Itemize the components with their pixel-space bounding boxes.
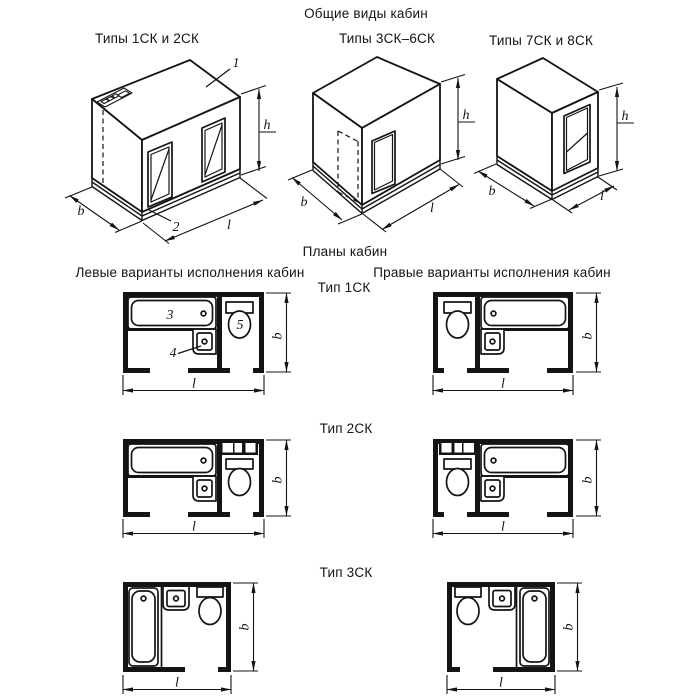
- dim-label-b: b: [301, 195, 308, 210]
- views-section-title: Общие виды кабин: [304, 6, 428, 21]
- width-dimension: [266, 293, 291, 372]
- plan-2sk-left: b l: [110, 433, 306, 545]
- toilet: [444, 459, 471, 496]
- bathtub: [129, 588, 158, 666]
- isometric-view-types-7sk-8sk: h b l: [465, 50, 640, 225]
- right-variants-header: Правые варианты исполнения кабин: [373, 265, 611, 280]
- callout-4: 4: [170, 346, 177, 361]
- washbasin: [193, 476, 216, 501]
- plan-type-label-3sk: Тип 3СК: [320, 565, 373, 580]
- callout-2: 2: [173, 220, 180, 235]
- standard-drawing-page: Общие виды кабин Типы 1СК и 2СК Типы 3СК…: [0, 0, 700, 700]
- dim-label-b: b: [489, 184, 496, 199]
- dim-label-b: b: [271, 477, 286, 484]
- left-variants-header: Левые варианты исполнения кабин: [75, 265, 304, 280]
- plans-section-title: Планы кабин: [303, 244, 388, 259]
- dim-label-l: l: [227, 218, 231, 233]
- vent-block: [219, 439, 258, 455]
- dim-label-h: h: [622, 109, 629, 124]
- washbasin: [481, 476, 504, 501]
- washbasin: [489, 587, 515, 610]
- callout-3: 3: [166, 308, 174, 323]
- dim-label-l: l: [175, 676, 179, 691]
- vent-block: [439, 439, 478, 455]
- plan-3sk-right: b l: [435, 578, 595, 700]
- dim-label-b: b: [581, 333, 596, 340]
- dim-label-b: b: [271, 333, 286, 340]
- dim-label-h: h: [264, 118, 271, 133]
- width-dimension: [576, 293, 601, 372]
- toilet: [444, 302, 471, 338]
- bathtub: [481, 297, 572, 330]
- dim-label-l: l: [192, 377, 196, 392]
- height-dimension: [241, 86, 276, 176]
- height-dimension: [599, 83, 634, 176]
- plan-type-label-1sk: Тип 1СК: [318, 280, 371, 295]
- washbasin: [481, 329, 504, 354]
- dim-label-l: l: [501, 377, 505, 392]
- plan-3sk-left: b l: [110, 578, 268, 700]
- dim-label-l: l: [192, 520, 196, 535]
- view-label-1sk-2sk: Типы 1СК и 2СК: [95, 31, 199, 46]
- isometric-view-types-1sk-2sk: h b l 1 2: [55, 50, 280, 245]
- view-label-7sk-8sk: Типы 7СК и 8СК: [489, 33, 593, 48]
- toilet: [197, 587, 223, 625]
- dim-label-b: b: [78, 204, 85, 219]
- plan-1sk-right: b l: [425, 286, 611, 398]
- view-label-3sk-6sk: Типы 3СК–6СК: [339, 31, 435, 46]
- plan-1sk-left: 3 4 5 b l: [110, 286, 306, 398]
- bathtub: [481, 444, 572, 477]
- dim-label-l: l: [600, 189, 604, 204]
- dim-label-b: b: [562, 624, 577, 631]
- dim-label-l: l: [499, 676, 503, 691]
- dim-label-l: l: [430, 201, 434, 216]
- plan-type-label-2sk: Тип 2СК: [320, 421, 373, 436]
- washbasin: [163, 587, 189, 610]
- callout-5: 5: [237, 318, 244, 333]
- dim-label-b: b: [238, 624, 253, 631]
- toilet: [455, 587, 481, 625]
- bathtub: [520, 588, 549, 666]
- toilet: [226, 459, 253, 496]
- plan-2sk-right: b l: [425, 433, 611, 545]
- isometric-view-types-3sk-6sk: h b l: [285, 50, 477, 235]
- bathtub: [125, 444, 216, 477]
- callout-1: 1: [233, 56, 240, 71]
- dim-label-l: l: [501, 520, 505, 535]
- dim-label-b: b: [581, 477, 596, 484]
- washbasin: [193, 329, 216, 354]
